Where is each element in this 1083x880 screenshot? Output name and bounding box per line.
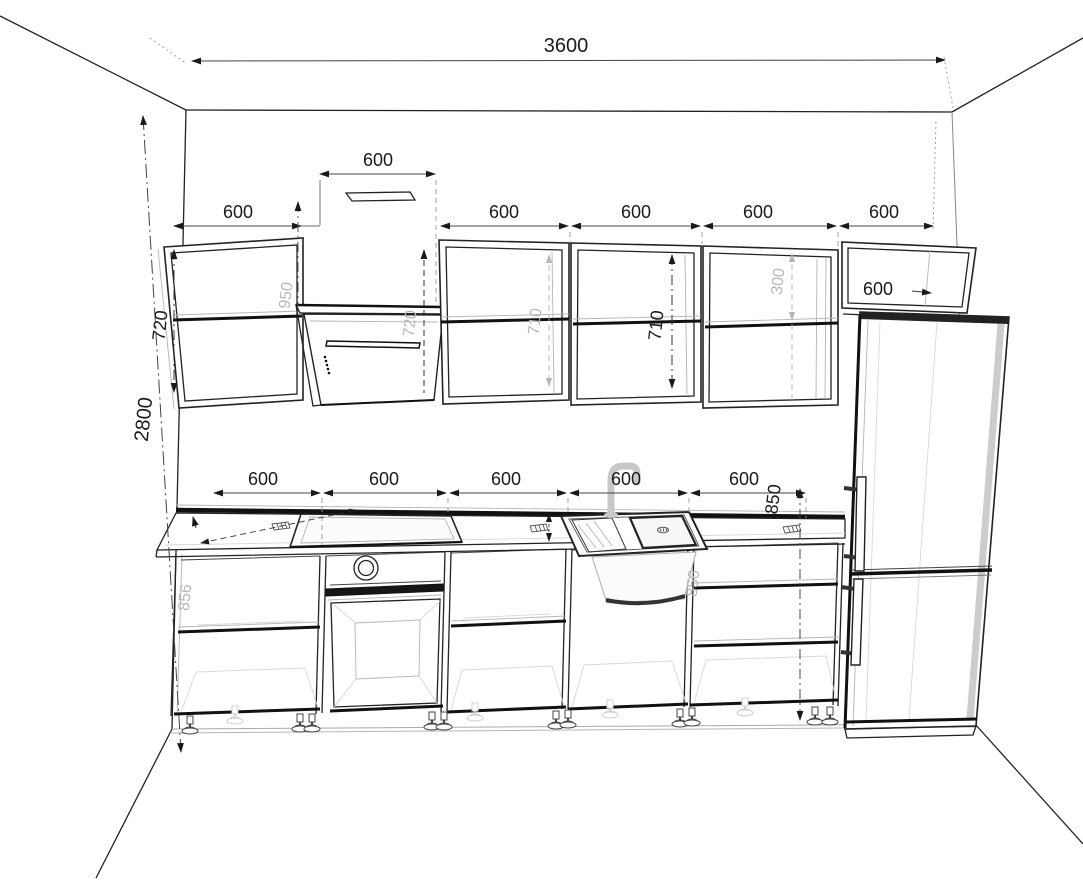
sink-cabinet [568,552,696,709]
hood-chimney [346,192,415,201]
dim-room-width-label: 3600 [544,35,589,57]
range-hood [296,192,445,406]
oven [326,556,443,711]
upper-cabinet-1 [158,238,303,409]
dim-upper1-height: 720 [149,309,172,341]
dim-hood-clearance: 950 [276,281,296,310]
base-cabinet-3 [447,614,566,712]
oven-knob [354,556,378,580]
dim-sink-carcass: 856 [684,569,704,597]
sink [561,512,707,556]
dim-base1-width: 600 [248,469,278,489]
hood-handle [326,341,420,348]
counter-surface [157,513,845,550]
dim-upper3-width: 600 [621,202,651,222]
dim-counter-height: 850 [761,483,785,515]
dim-base5-width: 600 [729,469,759,489]
dim-upper3-inner: 710 [645,309,668,341]
base-cabinet-1 [174,621,320,714]
cooktop [290,514,462,547]
dim-upper2-width: 600 [489,202,519,222]
dim-upper4-width: 600 [743,202,773,222]
dim-base3-width: 600 [491,469,521,489]
hood-panel [304,314,443,405]
fridge [841,312,1009,738]
dim-room-width: 3600 [150,35,953,108]
base-cabinet-5 [690,579,838,705]
dim-base1-carcass: 856 [176,583,196,611]
dim-upper1-width: 600 [223,202,253,222]
dim-base4-width: 600 [611,469,641,489]
dim-base2-width: 600 [369,469,399,489]
upper-cabinet-2 [439,240,569,404]
dim-upper2-inner: 710 [526,307,546,335]
dim-hood-width: 600 [363,150,393,170]
dim-fridge-cab-width: 600 [869,202,899,222]
oven-handle [326,584,443,596]
kitchen-elevation-drawing: 3600 2800 600 600 600 600 600 600 950 72… [0,0,1083,880]
dim-fridge-cab-depth: 600 [863,279,893,299]
upper-cabinet-3 [571,243,701,405]
dim-fridge-cab-shelf: 300 [769,267,789,295]
dim-hood-panel-height: 720 [401,309,421,337]
dim-room-height-label: 2800 [131,396,158,443]
